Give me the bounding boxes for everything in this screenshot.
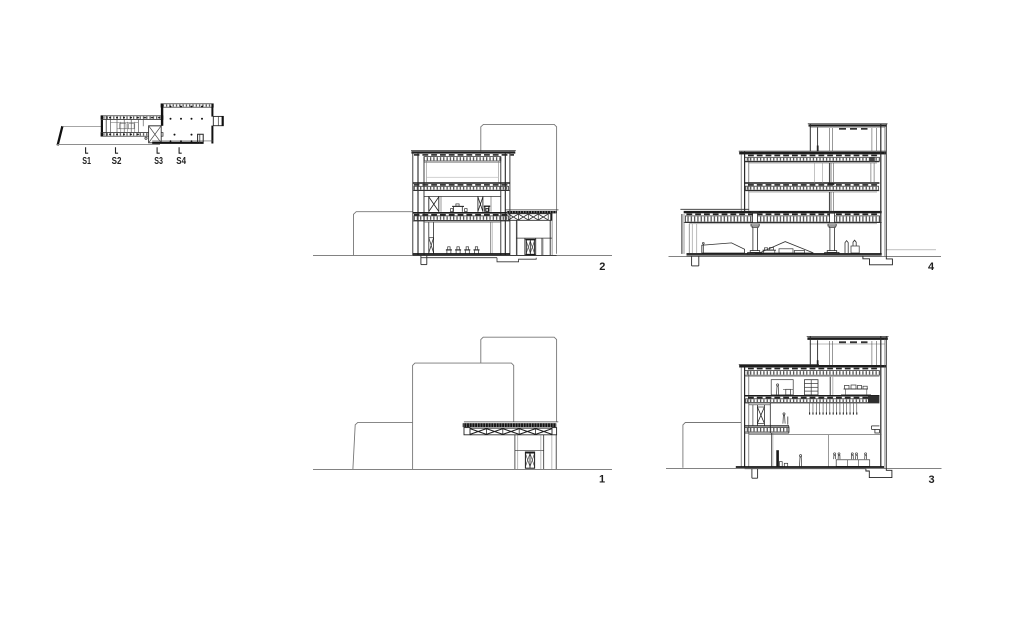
svg-text:3: 3 (928, 474, 934, 486)
svg-text:S1: S1 (82, 155, 91, 167)
svg-text:S2: S2 (112, 155, 122, 167)
svg-text:1: 1 (599, 474, 605, 486)
svg-text:S3: S3 (154, 155, 163, 167)
svg-text:4: 4 (928, 261, 935, 273)
svg-text:2: 2 (599, 261, 605, 273)
svg-text:S4: S4 (176, 155, 186, 167)
